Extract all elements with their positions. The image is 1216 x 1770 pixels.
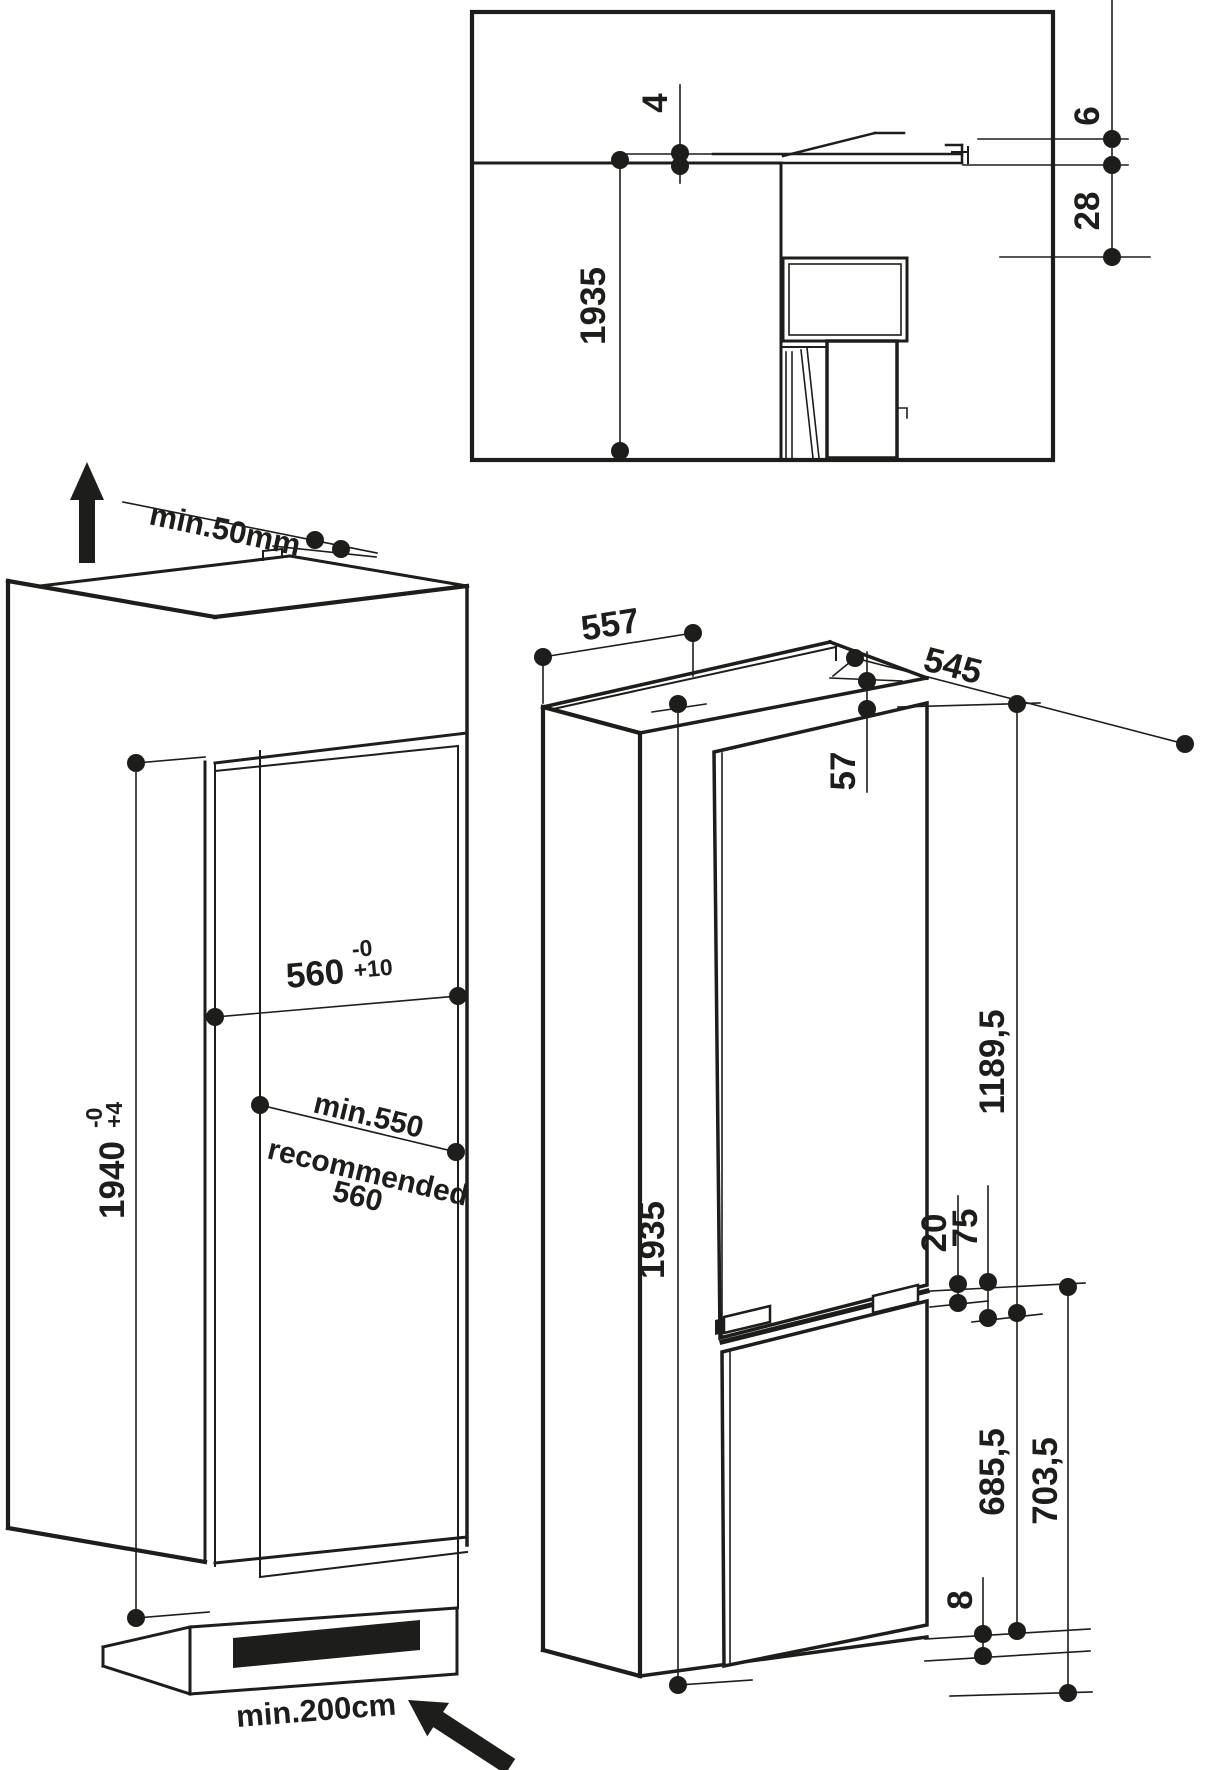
cabinet-front-top [215, 586, 467, 617]
top-rail [553, 647, 836, 709]
dim-557: 557 [534, 601, 702, 703]
plinth-side-top [103, 1627, 190, 1647]
dim-dot [846, 649, 864, 667]
top-clearance-label: min.50mm [147, 497, 304, 563]
dim-dot [669, 695, 687, 713]
dim-20-75: 20 75 [915, 1186, 1085, 1327]
dim-dot [306, 531, 324, 549]
dim-dot [611, 442, 629, 460]
dim-57-label: 57 [824, 752, 863, 791]
dim-dot [1059, 1278, 1077, 1296]
up-arrow-icon [70, 462, 104, 563]
dim-dot [447, 1143, 465, 1161]
niche-floor-front [215, 1537, 467, 1563]
dim-dot [332, 540, 350, 558]
dim-1940: 1940 -0 +4 [81, 754, 209, 1627]
recess-outer [783, 258, 907, 341]
dim-1935-detail: 1935 [574, 151, 629, 460]
door-layer [807, 348, 819, 458]
niche-outline [472, 12, 1053, 460]
dim-dot [127, 1609, 145, 1627]
dim-dot [974, 1625, 992, 1643]
dim-dot [1103, 248, 1121, 266]
dim-dot [858, 672, 876, 690]
ventilation-grille [233, 1620, 420, 1668]
door-panel [827, 341, 897, 458]
dim-685-5-label: 685,5 [973, 1428, 1012, 1516]
dim-dot [611, 151, 629, 169]
hinge-cover-diagonal [783, 133, 875, 156]
plinth-side-bottom [103, 1666, 190, 1694]
dim-703-5: 703,5 [1026, 1278, 1077, 1702]
dim-dot [979, 1309, 997, 1327]
dim-dot [127, 754, 145, 772]
dim-1940-tol-lower: +4 [101, 1102, 127, 1128]
dim-75-label: 75 [946, 1209, 985, 1248]
dim-dot [251, 1096, 269, 1114]
dim-8-label: 8 [941, 1590, 980, 1609]
dim-560-label: 560 [284, 952, 346, 996]
appliance-side-bottom [543, 1650, 640, 1676]
lower-door [722, 1301, 927, 1666]
ventilation-label: min.200cm [235, 1687, 398, 1734]
top-detail-view: 4 1935 6 28 [472, 0, 1150, 460]
dim-557-label: 557 [578, 601, 642, 649]
dim-703-5-label: 703,5 [1026, 1437, 1065, 1525]
dim-6-28: 6 28 [963, 0, 1150, 266]
dim-1189-5-label: 1189,5 [973, 1009, 1012, 1114]
cabinet-side-bottom [8, 1528, 205, 1562]
cabinet-top-right [290, 556, 467, 586]
dim-1940-label: 1940 [93, 1141, 132, 1219]
dim-dot [449, 987, 467, 1005]
dim-dot [949, 1275, 967, 1293]
dim-dot [858, 700, 876, 718]
dim-560-tol-lower: +10 [353, 954, 394, 983]
hinge-cap [715, 1318, 724, 1335]
door-layer [801, 350, 813, 458]
installation-drawing: 4 1935 6 28 [0, 0, 1216, 1770]
dim-8: 8 [925, 1578, 1092, 1696]
cabinet-view: min.50mm 560 -0 +10 min.550 recommended [8, 462, 521, 1770]
dim-1935-detail-label: 1935 [574, 267, 613, 345]
dim-dot [206, 1008, 224, 1026]
dim-dot [949, 1294, 967, 1312]
dim-dot [1176, 735, 1194, 753]
dim-dot [1008, 1622, 1026, 1640]
dim-28-label: 28 [1068, 192, 1107, 231]
appliance-view: 557 545 57 [534, 601, 1194, 1702]
dim-545-label: 545 [920, 640, 986, 692]
dim-685-5: 685,5 [973, 1313, 1026, 1640]
recess-inner [789, 264, 901, 335]
dim-dot [1103, 130, 1121, 148]
dim-depth: min.550 recommended 560 [251, 1087, 471, 1219]
appliance-side-top [543, 707, 640, 733]
dim-dot [1008, 695, 1026, 713]
upper-door [714, 703, 927, 1338]
dim-dot [684, 624, 702, 642]
dim-dot [669, 1676, 687, 1694]
dim-dot [671, 157, 689, 175]
cabinet-top-back [40, 556, 290, 586]
dim-dot [534, 648, 552, 666]
dim-depth-min-label: min.550 [310, 1087, 426, 1145]
plinth-bottom [190, 1674, 457, 1694]
dim-dot [974, 1647, 992, 1665]
appliance-top-back [543, 642, 830, 707]
dim-6-label: 6 [1068, 106, 1107, 125]
dim-dot [979, 1273, 997, 1291]
dim-4: 4 [636, 85, 689, 183]
airflow-arrow-icon [397, 1683, 521, 1770]
dim-560: 560 -0 +10 [206, 933, 467, 1026]
dim-dot [1103, 156, 1121, 174]
dim-4-label: 4 [636, 93, 675, 113]
dim-1935-appliance-label: 1935 [633, 1201, 672, 1279]
